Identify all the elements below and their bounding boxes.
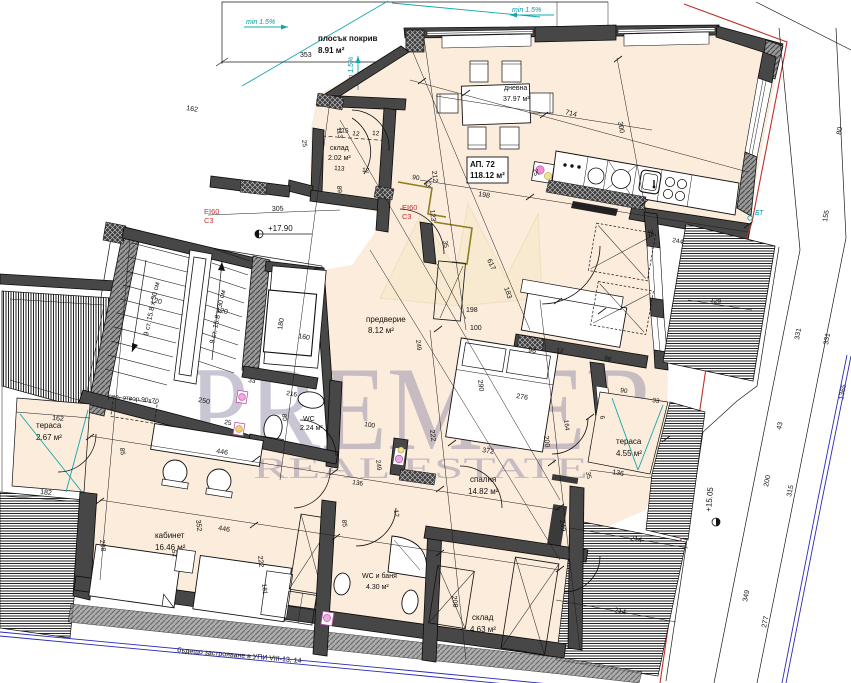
svg-text:198: 198 xyxy=(466,307,478,314)
svg-text:96: 96 xyxy=(528,347,537,355)
svg-text:+17.90: +17.90 xyxy=(268,224,293,233)
svg-text:2.67 м²: 2.67 м² xyxy=(36,433,62,442)
svg-text:EI60: EI60 xyxy=(402,203,417,212)
svg-text:52: 52 xyxy=(170,549,178,557)
svg-text:113: 113 xyxy=(335,127,343,139)
svg-text:90: 90 xyxy=(412,174,421,182)
svg-text:123: 123 xyxy=(428,209,436,222)
svg-text:дневна: дневна xyxy=(504,85,527,92)
svg-text:предверие: предверие xyxy=(366,315,406,324)
svg-text:305: 305 xyxy=(272,206,284,213)
svg-text:37.97 м²: 37.97 м² xyxy=(503,96,530,103)
svg-text:БТ: БТ xyxy=(755,210,764,217)
svg-text:спалня: спалня xyxy=(470,475,496,484)
svg-text:208: 208 xyxy=(98,539,106,552)
svg-text:тераса: тераса xyxy=(616,437,642,446)
svg-text:12: 12 xyxy=(392,509,400,517)
svg-text:181: 181 xyxy=(260,583,268,595)
svg-text:164: 164 xyxy=(562,419,570,431)
svg-text:222: 222 xyxy=(428,429,436,442)
svg-text:склад: склад xyxy=(472,613,494,622)
svg-text:100: 100 xyxy=(470,325,482,332)
svg-text:склад: склад xyxy=(330,145,349,152)
svg-text:WC и баня: WC и баня xyxy=(362,572,397,580)
svg-text:222: 222 xyxy=(256,555,264,568)
svg-text:min 1.5%: min 1.5% xyxy=(246,19,275,26)
svg-text:80: 80 xyxy=(280,413,288,421)
svg-text:249: 249 xyxy=(374,459,382,471)
svg-text:4.55 м²: 4.55 м² xyxy=(616,449,642,458)
svg-text:25: 25 xyxy=(300,139,308,147)
svg-text:113: 113 xyxy=(334,165,345,173)
svg-text:4.30 м²: 4.30 м² xyxy=(366,584,389,591)
svg-text:212: 212 xyxy=(430,170,438,183)
svg-text:42: 42 xyxy=(424,181,433,189)
svg-text:249: 249 xyxy=(414,339,422,351)
svg-text:12: 12 xyxy=(352,130,361,138)
svg-text:2.02 м²: 2.02 м² xyxy=(328,155,351,162)
svg-text:249: 249 xyxy=(558,519,566,532)
svg-text:200: 200 xyxy=(542,435,550,448)
svg-text:АП. 72: АП. 72 xyxy=(470,160,495,169)
svg-text:плосък покрив: плосък покрив xyxy=(318,34,378,43)
svg-text:14.82 м²: 14.82 м² xyxy=(468,487,499,496)
svg-text:208: 208 xyxy=(450,595,458,608)
svg-text:290: 290 xyxy=(476,379,484,392)
svg-text:352: 352 xyxy=(194,519,202,532)
svg-text:кабинет: кабинет xyxy=(155,531,185,540)
svg-text:89: 89 xyxy=(335,185,343,193)
svg-text:4.63 м²: 4.63 м² xyxy=(470,625,496,634)
svg-text:12: 12 xyxy=(372,130,380,138)
svg-text:80: 80 xyxy=(836,126,844,135)
svg-text:C3: C3 xyxy=(204,216,214,225)
svg-text:118.12 м²: 118.12 м² xyxy=(470,171,505,180)
svg-text:85: 85 xyxy=(340,519,348,527)
svg-text:182: 182 xyxy=(40,489,52,497)
svg-text:8.91 м²: 8.91 м² xyxy=(318,46,345,55)
svg-text:33: 33 xyxy=(248,377,257,385)
svg-text:25: 25 xyxy=(224,419,233,427)
svg-text:C3: C3 xyxy=(402,212,412,221)
svg-text:8.12 м²: 8.12 м² xyxy=(368,326,394,335)
svg-text:353: 353 xyxy=(300,52,312,59)
svg-text:162: 162 xyxy=(52,415,64,423)
svg-text:85: 85 xyxy=(118,447,126,455)
